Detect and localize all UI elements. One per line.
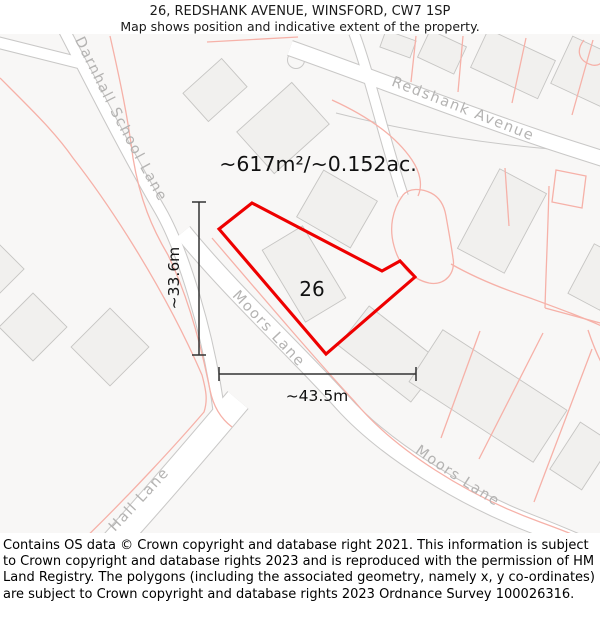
height-dimension-label: ~33.6m: [165, 247, 183, 310]
width-dimension-label: ~43.5m: [286, 387, 349, 405]
page-title: 26, REDSHANK AVENUE, WINSFORD, CW7 1SP: [0, 4, 600, 19]
area-label: ~617m²/~0.152ac.: [219, 152, 417, 176]
property-map-page: 26, REDSHANK AVENUE, WINSFORD, CW7 1SP M…: [0, 0, 600, 625]
header: 26, REDSHANK AVENUE, WINSFORD, CW7 1SP M…: [0, 0, 600, 34]
page-subtitle: Map shows position and indicative extent…: [0, 19, 600, 34]
attribution-text: Contains OS data © Crown copyright and d…: [3, 538, 597, 603]
map-canvas: ~33.6m ~43.5m ~617m²/~0.152ac. 26 Darnha…: [0, 33, 600, 533]
plot-number-label: 26: [299, 277, 324, 301]
